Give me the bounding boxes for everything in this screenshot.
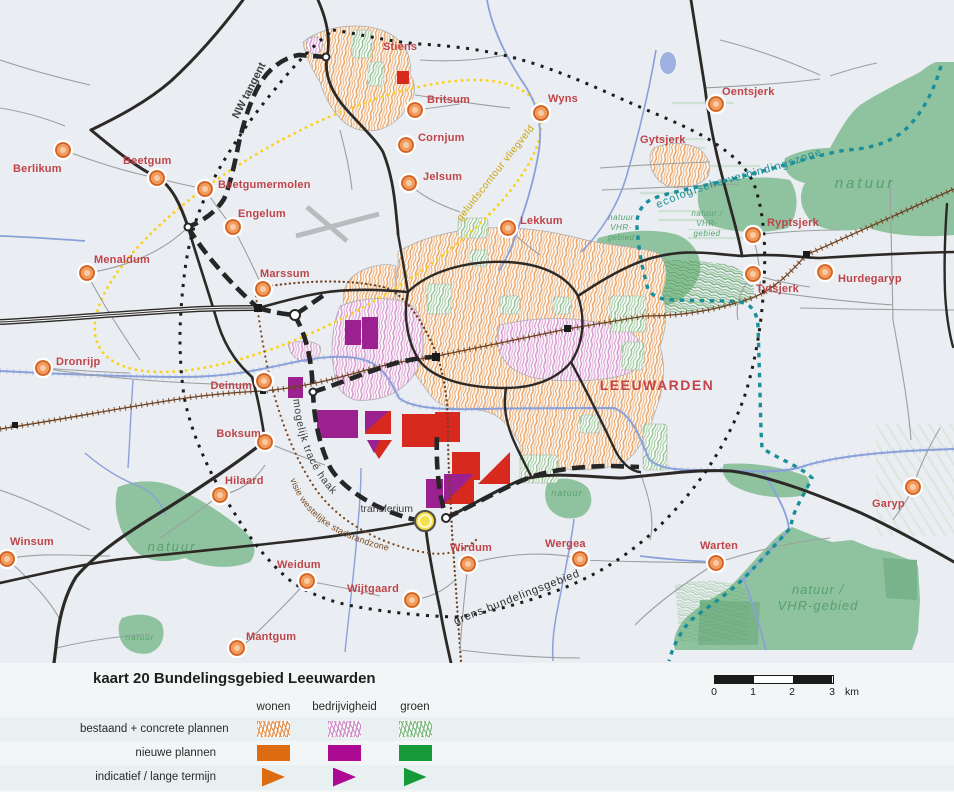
town-label: Oentsjerk bbox=[722, 86, 775, 98]
town-label: Lekkum bbox=[520, 215, 563, 227]
map-canvas: StiensBritsumCornjumJelsumWynsLekkumOent… bbox=[0, 0, 954, 663]
town-marker-center bbox=[412, 107, 418, 113]
swatch-bedrijvigheid-bestaand bbox=[328, 721, 361, 737]
transferium-marker bbox=[415, 511, 435, 531]
town-label: Mantgum bbox=[246, 631, 296, 643]
legend-column-bedrijvigheid: bedrijvigheid bbox=[309, 701, 380, 717]
town-label: Cornjum bbox=[418, 132, 465, 144]
town-marker-center bbox=[822, 269, 828, 275]
town-marker-center bbox=[713, 560, 719, 566]
town-marker-center bbox=[406, 180, 412, 186]
town-label: Warten bbox=[700, 540, 738, 552]
town-marker-center bbox=[403, 142, 409, 148]
swatch-bedrijvigheid-nieuw bbox=[328, 745, 361, 761]
town-label: Menaldum bbox=[94, 254, 150, 266]
legend-row-bestaand: bestaand + concrete plannen bbox=[80, 723, 238, 735]
swatch-wonen-bestaand bbox=[257, 721, 290, 737]
scale-tick-3: 3 bbox=[829, 686, 835, 698]
town-marker-center bbox=[750, 232, 756, 238]
town-label: Ryptsjerk bbox=[767, 217, 820, 229]
town-label: Beetgum bbox=[123, 155, 171, 167]
town-marker-center bbox=[409, 597, 415, 603]
town-marker-center bbox=[217, 492, 223, 498]
town-marker-center bbox=[202, 186, 208, 192]
town-label: Hilaard bbox=[225, 475, 264, 487]
town-label: Boksum bbox=[216, 428, 261, 440]
triangle-wonen-indicatief bbox=[262, 768, 285, 787]
scale-bar-segments bbox=[714, 675, 834, 684]
swatch-groen-bestaand bbox=[399, 721, 432, 737]
scale-bar: 0 1 2 3 km bbox=[714, 675, 874, 700]
town-marker-center bbox=[84, 270, 90, 276]
town-label: Deinum bbox=[210, 380, 252, 392]
town-marker-center bbox=[750, 271, 756, 277]
legend-row-nieuwe: nieuwe plannen bbox=[80, 747, 238, 759]
town-label: Dronrijp bbox=[56, 356, 100, 368]
town-label: Jelsum bbox=[423, 171, 462, 183]
scale-unit: km bbox=[845, 686, 859, 698]
legend-title: kaart 20 Bundelingsgebied Leeuwarden bbox=[93, 670, 376, 687]
nature-label: natuur bbox=[551, 488, 583, 498]
town-label: Wijtgaard bbox=[347, 583, 399, 595]
city-label: LEEUWARDEN bbox=[600, 377, 715, 393]
town-label: Wirdum bbox=[450, 542, 492, 554]
scale-tick-1: 1 bbox=[750, 686, 756, 698]
town-label: Engelum bbox=[238, 208, 286, 220]
swatch-wonen-nieuw bbox=[257, 745, 290, 761]
town-marker-center bbox=[910, 484, 916, 490]
town-label: Hurdegaryp bbox=[838, 273, 902, 285]
town-marker-center bbox=[538, 110, 544, 116]
town-marker-center bbox=[234, 645, 240, 651]
town-label: Marssum bbox=[260, 268, 310, 280]
town-label: Winsum bbox=[10, 536, 54, 548]
town-label: Weidum bbox=[277, 559, 321, 571]
legend-column-wonen: wonen bbox=[238, 701, 309, 717]
town-marker-center bbox=[577, 556, 583, 562]
town-marker-center bbox=[60, 147, 66, 153]
legend: wonen bedrijvigheid groen bestaand + con… bbox=[80, 701, 450, 789]
town-marker-center bbox=[262, 439, 268, 445]
triangle-bedrijvigheid-indicatief bbox=[333, 768, 356, 787]
nature-label: natuur bbox=[148, 539, 197, 554]
map-page: StiensBritsumCornjumJelsumWynsLekkumOent… bbox=[0, 0, 954, 792]
town-label: Britsum bbox=[427, 94, 470, 106]
town-marker-center bbox=[230, 224, 236, 230]
town-marker-center bbox=[4, 556, 10, 562]
town-label: Wergea bbox=[545, 538, 586, 550]
route-label: transferium bbox=[360, 503, 413, 515]
town-marker-center bbox=[261, 378, 267, 384]
town-label: Garyp bbox=[872, 498, 905, 510]
swatch-groen-nieuw bbox=[399, 745, 432, 761]
town-marker-center bbox=[40, 365, 46, 371]
town-marker-center bbox=[505, 225, 511, 231]
scale-tick-2: 2 bbox=[789, 686, 795, 698]
town-label: Tytsjerk bbox=[756, 283, 800, 295]
nature-label: natuur bbox=[835, 175, 896, 192]
town-label: Stiens bbox=[383, 41, 417, 53]
scale-tick-0: 0 bbox=[711, 686, 717, 698]
town-label: Beetgumermolen bbox=[218, 179, 311, 191]
legend-row-indicatief: indicatief / lange termijn bbox=[80, 771, 238, 783]
town-marker-center bbox=[304, 578, 310, 584]
town-label: Wyns bbox=[548, 93, 578, 105]
town-marker-center bbox=[154, 175, 160, 181]
town-marker-center bbox=[713, 101, 719, 107]
town-marker-center bbox=[260, 286, 266, 292]
triangle-groen-indicatief bbox=[404, 768, 427, 787]
nature-label: natuurVHR-gebied bbox=[607, 213, 634, 242]
legend-column-groen: groen bbox=[380, 701, 450, 717]
town-label: Gytsjerk bbox=[640, 134, 686, 146]
town-label: Berlikum bbox=[13, 163, 62, 175]
town-marker-center bbox=[465, 561, 471, 567]
nature-label: natuur bbox=[126, 633, 155, 642]
